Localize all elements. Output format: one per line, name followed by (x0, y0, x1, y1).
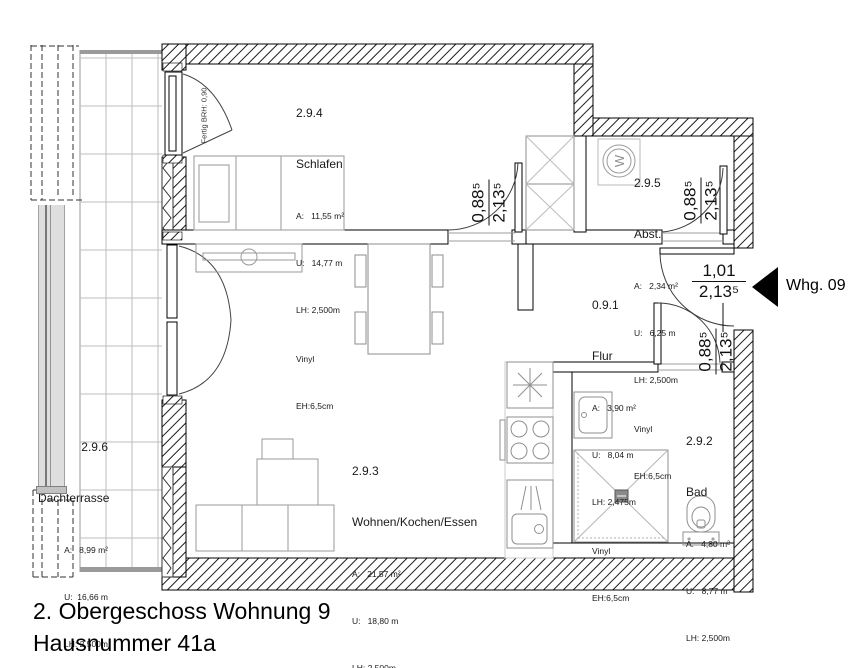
unit-entrance-arrow-icon (752, 267, 778, 307)
room-floor: Vinyl (592, 546, 636, 556)
room-clear-height: LH: 2,500m (296, 305, 344, 315)
wall-step-vertical (574, 64, 593, 136)
room-name: Dachterrasse (38, 492, 108, 506)
room-id: 2.9.5 (634, 177, 678, 191)
room-area: A: 8,99 m² (38, 545, 108, 555)
sideboard (196, 244, 302, 272)
room-name: Bad (686, 486, 730, 500)
room-label-bad: 2.9.2 Bad A: 4,80 m² U: 8,77 m LH: 2,500… (686, 398, 730, 668)
wall-abst-west (574, 136, 586, 232)
terrace-railing-strip (38, 205, 65, 492)
room-screed: EH:6,5cm (634, 471, 678, 481)
room-floor: Vinyl (296, 354, 344, 364)
sink-basin (512, 514, 547, 544)
room-clear-height: LH: 2,500m (352, 663, 477, 668)
wall-step-horizontal (593, 118, 753, 136)
wall-left-seg4 (173, 467, 186, 577)
floor-plan-page: W (0, 0, 855, 668)
washing-machine-label: W (612, 154, 627, 167)
wall-left-seg3 (162, 400, 186, 467)
room-id: 0.9.1 (592, 299, 636, 313)
dining-table (355, 244, 443, 354)
wall-right-upper (734, 136, 753, 248)
kitchen-unit (500, 362, 553, 558)
room-label-schlafen: 2.9.4 Schlafen A: 11,55 m² U: 14,77 m LH… (296, 70, 344, 448)
dim-width: 0,88⁵ (469, 179, 489, 225)
caption-line1: 2. Obergeschoss Wohnung 9 (33, 598, 330, 625)
terrace-french-door (167, 245, 231, 395)
room-clear-height: LH: 2,475m (592, 497, 636, 507)
unit-marker-label: Whg. 09 (786, 277, 846, 295)
room-id: 2.9.4 (296, 107, 344, 121)
room-screed: EH:6,5cm (592, 593, 636, 603)
dim-width: 0,88⁵ (681, 177, 701, 223)
dim-height: 2,13⁵ (692, 281, 746, 302)
wardrobe (526, 136, 574, 230)
room-area: A: 21,57 m² (352, 569, 477, 579)
room-id: 2.9.3 (352, 465, 477, 479)
sink-tap-icon (535, 525, 544, 534)
room-id: 2.9.2 (686, 435, 730, 449)
room-perimeter: U: 8,77 m (686, 586, 730, 596)
dim-width: 0,88⁵ (696, 328, 716, 374)
window-sill-note: Fertig BRH: 0,90 (200, 71, 209, 161)
oven-handle (500, 420, 505, 460)
room-label-wohnen: 2.9.3 Wohnen/Kochen/Essen A: 21,57 m² U:… (352, 428, 477, 668)
dim-schlafen-door: 0,88⁵ 2,13⁵ (469, 168, 510, 238)
wall-flur-stub (518, 244, 533, 310)
wall-right-lower (734, 330, 753, 592)
terrace-railing-cap (36, 486, 67, 494)
dim-height: 2,13⁵ (489, 179, 510, 225)
room-label-flur: 0.9.1 Flur A: 3,90 m² U: 8,04 m LH: 2,47… (592, 262, 636, 640)
dim-height: 2,13⁵ (716, 328, 737, 374)
room-perimeter: U: 14,77 m (296, 258, 344, 268)
sofa (196, 439, 334, 551)
dim-width: 1,01 (692, 261, 746, 281)
room-label-abst: 2.9.5 Abst. A: 2,34 m² U: 6,25 m LH: 2,5… (634, 140, 678, 518)
dim-abst-door: 0,88⁵ 2,13⁵ (681, 166, 722, 236)
cooktop (507, 417, 553, 463)
wall-top (162, 44, 593, 64)
room-clear-height: LH: 2,500m (686, 633, 730, 643)
caption-line2: Hausnummer 41a (33, 630, 216, 657)
room-area: A: 11,55 m² (296, 211, 344, 221)
drainer-lines (521, 486, 541, 510)
railing-line (45, 205, 47, 492)
room-name: Wohnen/Kochen/Essen (352, 516, 477, 530)
schlafen-door-leaf (515, 163, 522, 232)
room-area: A: 4,80 m² (686, 539, 730, 549)
room-area: A: 3,90 m² (592, 403, 636, 413)
schlafen-window (165, 72, 232, 155)
freezer-star-icon (513, 368, 547, 402)
wall-bad-west (553, 362, 572, 545)
dim-entrance-door: 1,01 2,13⁵ (692, 261, 746, 302)
dim-bad-door: 0,88⁵ 2,13⁵ (696, 317, 737, 387)
room-perimeter: U: 18,80 m (352, 616, 477, 626)
room-name: Abst. (634, 228, 678, 242)
wall-left-seg2 (173, 157, 186, 240)
room-area: A: 2,34 m² (634, 281, 678, 291)
room-name: Schlafen (296, 158, 344, 172)
room-screed: EH:6,5cm (296, 401, 344, 411)
room-clear-height: LH: 2,500m (634, 375, 678, 385)
room-floor: Vinyl (634, 424, 678, 434)
room-perimeter: U: 6,25 m (634, 328, 678, 338)
room-perimeter: U: 8,04 m (592, 450, 636, 460)
dim-height: 2,13⁵ (701, 177, 722, 223)
railing-line (50, 205, 51, 492)
room-name: Flur (592, 350, 636, 364)
